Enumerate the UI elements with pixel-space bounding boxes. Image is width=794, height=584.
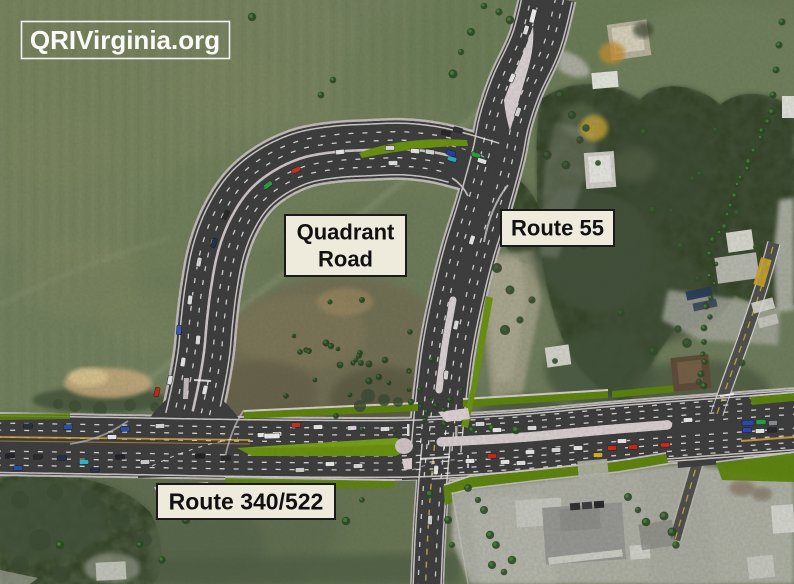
svg-text:Route 340/522: Route 340/522 xyxy=(169,489,324,515)
svg-text:Quadrant: Quadrant xyxy=(297,220,395,245)
svg-text:QRIVirginia.org: QRIVirginia.org xyxy=(30,25,220,55)
svg-text:Route 55: Route 55 xyxy=(511,216,604,241)
svg-text:Road: Road xyxy=(318,247,373,272)
